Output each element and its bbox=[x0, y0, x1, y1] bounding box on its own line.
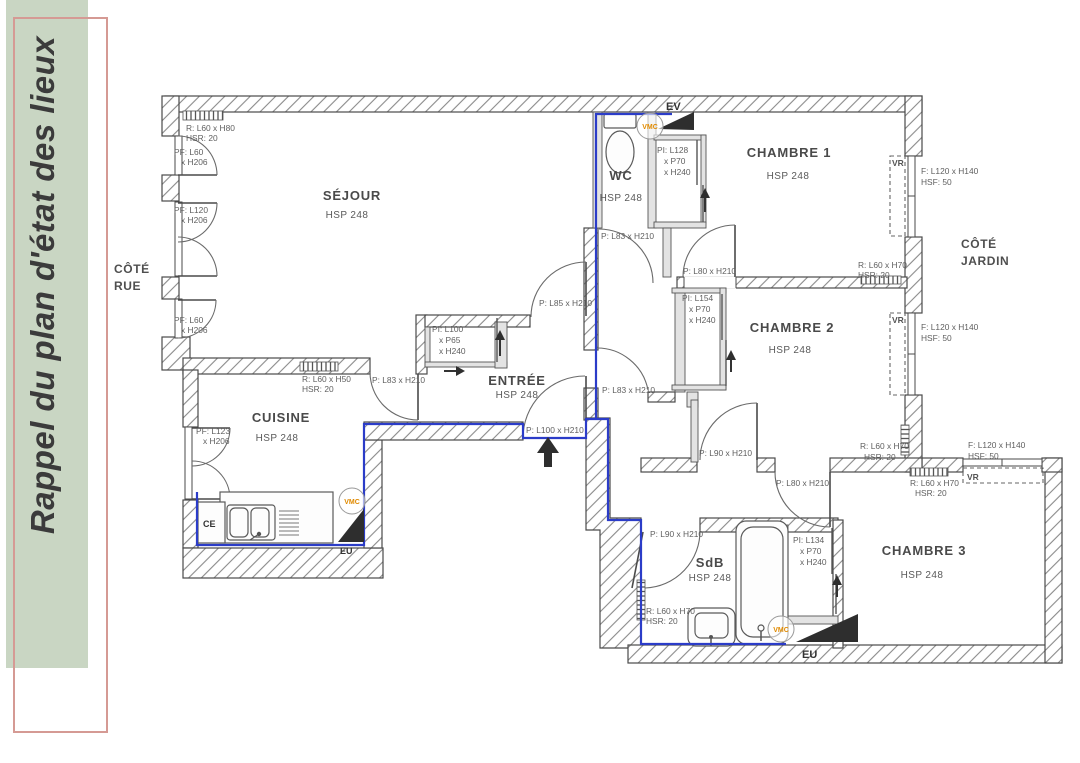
svg-text:x H206: x H206 bbox=[181, 325, 208, 335]
svg-text:P: L85 x H210: P: L85 x H210 bbox=[539, 298, 592, 308]
svg-text:P: L90 x H210: P: L90 x H210 bbox=[650, 529, 703, 539]
vmc-label-wc: VMC bbox=[642, 124, 658, 131]
room-label-entree: ENTRÉE bbox=[488, 373, 546, 388]
svg-text:HSR: 20: HSR: 20 bbox=[186, 133, 218, 143]
svg-text:P: L83 x H210: P: L83 x H210 bbox=[372, 375, 425, 385]
svg-text:R: L60 x H70: R: L60 x H70 bbox=[910, 478, 959, 488]
svg-text:x P65: x P65 bbox=[439, 335, 461, 345]
vmc-label-cuisine: VMC bbox=[344, 499, 360, 506]
svg-text:R: L60 x H70: R: L60 x H70 bbox=[646, 606, 695, 616]
svg-text:HSR: 20: HSR: 20 bbox=[858, 270, 890, 280]
cote-rue-line1: CÔTÉ bbox=[114, 261, 150, 276]
room-label-cuisine: CUISINE bbox=[252, 410, 310, 425]
svg-text:x H206: x H206 bbox=[181, 157, 208, 167]
svg-text:P: L80 x H210: P: L80 x H210 bbox=[683, 266, 736, 276]
cote-rue-line2: RUE bbox=[114, 279, 141, 293]
svg-text:x P70: x P70 bbox=[689, 304, 711, 314]
svg-text:x H240: x H240 bbox=[689, 315, 716, 325]
svg-text:HSR: 20: HSR: 20 bbox=[302, 384, 334, 394]
svg-text:PI: L128: PI: L128 bbox=[657, 145, 689, 155]
cote-jardin-line1: CÔTÉ bbox=[961, 236, 997, 251]
page: Rappel du plan d'état des lieux bbox=[0, 0, 1080, 763]
svg-text:HSF: 50: HSF: 50 bbox=[968, 451, 999, 461]
hsp-entree: HSP 248 bbox=[496, 390, 539, 401]
svg-text:P: L100 x H210: P: L100 x H210 bbox=[526, 425, 584, 435]
svg-text:x P70: x P70 bbox=[664, 156, 686, 166]
svg-text:R: L60 x H50: R: L60 x H50 bbox=[302, 374, 351, 384]
room-label-chambre1: CHAMBRE 1 bbox=[747, 145, 831, 160]
svg-text:x P70: x P70 bbox=[800, 546, 822, 556]
ce-label: CE bbox=[203, 519, 216, 529]
svg-text:P: L83 x H210: P: L83 x H210 bbox=[602, 385, 655, 395]
svg-text:HSF: 50: HSF: 50 bbox=[921, 333, 952, 343]
svg-text:HSR: 20: HSR: 20 bbox=[864, 452, 896, 462]
svg-text:PI: L134: PI: L134 bbox=[793, 535, 825, 545]
svg-text:R: L60 x H70: R: L60 x H70 bbox=[858, 260, 907, 270]
svg-text:x H240: x H240 bbox=[664, 167, 691, 177]
floor-plan: VR VR VR bbox=[0, 0, 1080, 763]
hsp-sdb: HSP 248 bbox=[689, 573, 732, 584]
hsp-chambre2: HSP 248 bbox=[769, 345, 812, 356]
svg-text:PI: L154: PI: L154 bbox=[682, 293, 714, 303]
svg-text:HSF: 50: HSF: 50 bbox=[921, 177, 952, 187]
svg-text:x H240: x H240 bbox=[800, 557, 827, 567]
vr-label-3: VR bbox=[967, 472, 979, 482]
hsp-wc: HSP 248 bbox=[600, 193, 643, 204]
ev-label: EV bbox=[666, 101, 681, 113]
svg-text:PF: L120: PF: L120 bbox=[174, 205, 208, 215]
eu-label-cuisine: EU bbox=[340, 546, 353, 556]
vr-label-2: VR bbox=[892, 315, 904, 325]
svg-text:P: L83 x H210: P: L83 x H210 bbox=[601, 231, 654, 241]
svg-text:x H240: x H240 bbox=[439, 346, 466, 356]
eu-label-sdb: EU bbox=[802, 649, 817, 661]
hsp-sejour: HSP 248 bbox=[326, 210, 369, 221]
room-label-chambre2: CHAMBRE 2 bbox=[750, 320, 834, 335]
toilet bbox=[604, 114, 636, 173]
svg-text:R: L60 x H70: R: L60 x H70 bbox=[860, 441, 909, 451]
svg-text:HSR: 20: HSR: 20 bbox=[915, 488, 947, 498]
svg-text:F: L120 x H140: F: L120 x H140 bbox=[921, 322, 979, 332]
svg-text:PF: L60: PF: L60 bbox=[174, 147, 204, 157]
svg-text:PI: L100: PI: L100 bbox=[432, 324, 464, 334]
svg-text:PF: L60: PF: L60 bbox=[174, 315, 204, 325]
svg-text:x H206: x H206 bbox=[203, 436, 230, 446]
svg-text:x H206: x H206 bbox=[181, 215, 208, 225]
room-label-sejour: SÉJOUR bbox=[323, 188, 381, 203]
svg-text:F: L120 x H140: F: L120 x H140 bbox=[921, 166, 979, 176]
hsp-chambre3: HSP 248 bbox=[901, 570, 944, 581]
hsp-chambre1: HSP 248 bbox=[767, 171, 810, 182]
room-label-chambre3: CHAMBRE 3 bbox=[882, 543, 966, 558]
room-label-wc: WC bbox=[609, 168, 632, 183]
entry-arrow bbox=[537, 437, 559, 467]
vr-label-1: VR bbox=[892, 158, 904, 168]
svg-text:PF: L123: PF: L123 bbox=[196, 426, 230, 436]
vmc-label-sdb: VMC bbox=[773, 627, 789, 634]
room-label-sdb: SdB bbox=[696, 555, 724, 570]
svg-text:F: L120 x H140: F: L120 x H140 bbox=[968, 440, 1026, 450]
svg-text:R: L60 x H80: R: L60 x H80 bbox=[186, 123, 235, 133]
svg-text:P: L90 x H210: P: L90 x H210 bbox=[699, 448, 752, 458]
svg-text:P: L80 x H210: P: L80 x H210 bbox=[776, 478, 829, 488]
hsp-cuisine: HSP 248 bbox=[256, 433, 299, 444]
svg-text:HSR: 20: HSR: 20 bbox=[646, 616, 678, 626]
cote-jardin-line2: JARDIN bbox=[961, 254, 1009, 268]
washbasin bbox=[688, 608, 735, 646]
